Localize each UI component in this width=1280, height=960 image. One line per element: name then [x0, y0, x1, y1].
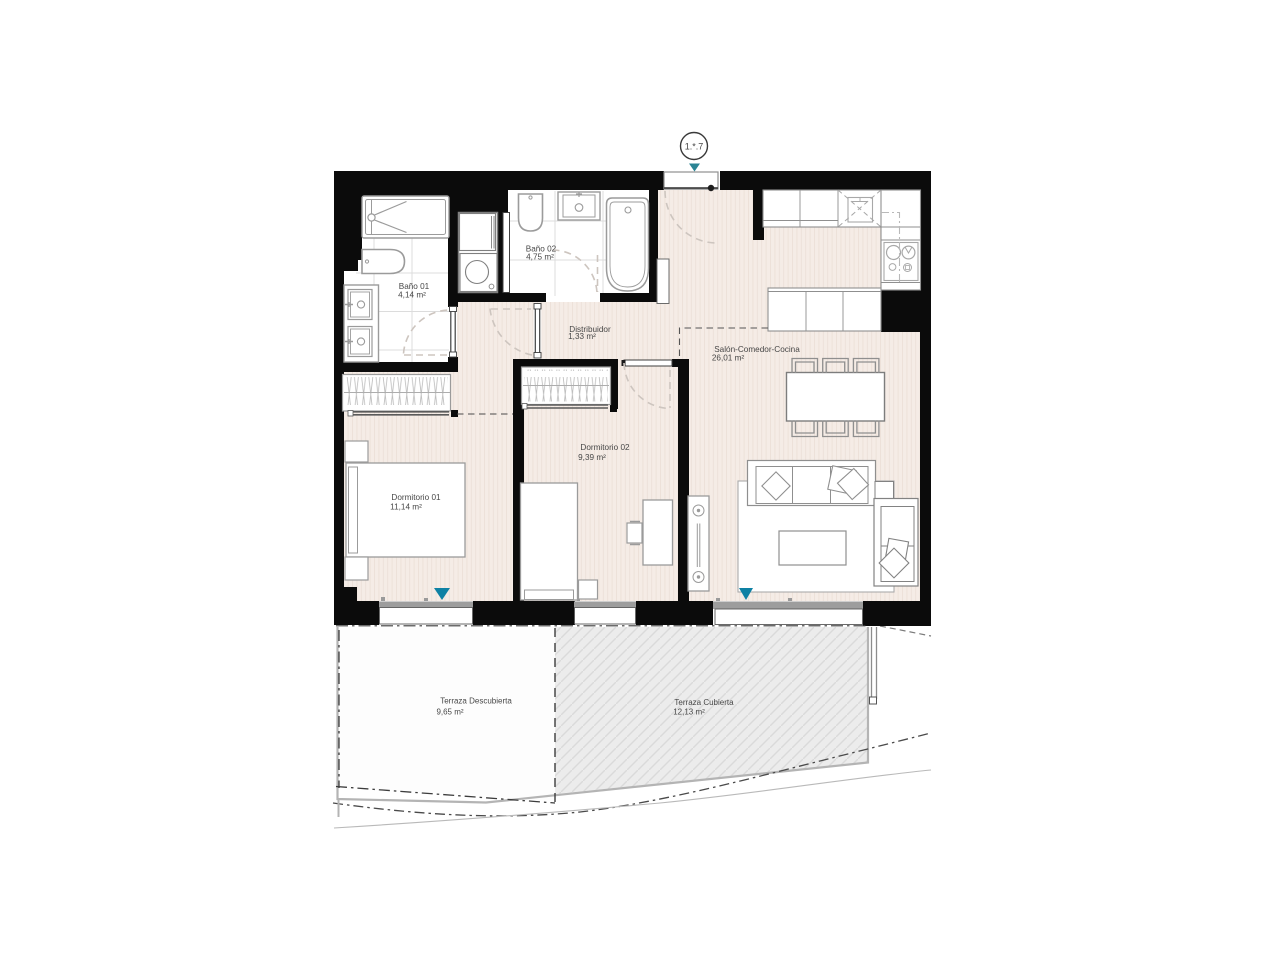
svg-text:Terraza Descubierta: Terraza Descubierta — [440, 697, 512, 706]
svg-text:Terraza Cubierta: Terraza Cubierta — [674, 698, 734, 707]
svg-text:1.*.7: 1.*.7 — [685, 142, 704, 152]
svg-text:4,14 m²: 4,14 m² — [398, 291, 426, 300]
svg-text:Dormitorio 01: Dormitorio 01 — [391, 493, 441, 502]
svg-text:26,01 m²: 26,01 m² — [712, 354, 745, 363]
svg-text:1,33 m²: 1,33 m² — [568, 332, 596, 341]
svg-text:9,65 m²: 9,65 m² — [436, 708, 463, 717]
svg-text:11,14 m²: 11,14 m² — [390, 503, 422, 512]
svg-text:4,75 m²: 4,75 m² — [526, 253, 554, 262]
svg-text:9,39 m²: 9,39 m² — [578, 453, 606, 462]
svg-text:12,13 m²: 12,13 m² — [673, 708, 705, 717]
svg-text:Dormitorio 02: Dormitorio 02 — [580, 443, 630, 452]
